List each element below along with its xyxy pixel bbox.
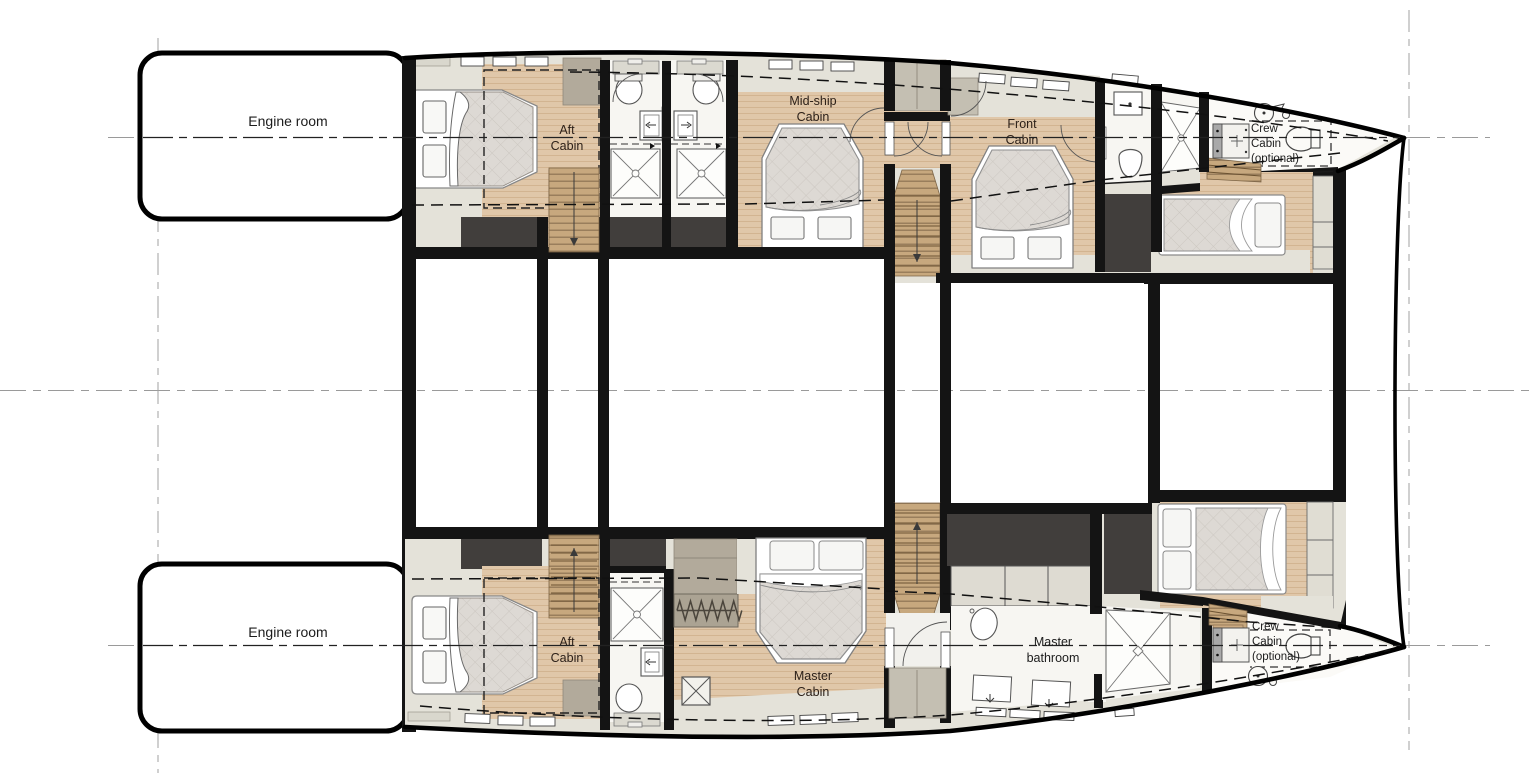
svg-text:Cabin: Cabin bbox=[551, 651, 584, 665]
svg-text:Cabin: Cabin bbox=[1251, 138, 1281, 150]
svg-text:(optional): (optional) bbox=[1252, 651, 1300, 663]
svg-text:Cabin: Cabin bbox=[797, 685, 830, 699]
svg-text:Cabin: Cabin bbox=[1252, 636, 1282, 648]
svg-text:Aft: Aft bbox=[559, 635, 575, 649]
svg-text:Master: Master bbox=[1034, 635, 1072, 649]
svg-text:Master: Master bbox=[794, 669, 832, 683]
svg-text:Mid-ship: Mid-ship bbox=[789, 94, 836, 108]
svg-text:bathroom: bathroom bbox=[1027, 651, 1080, 665]
svg-text:Engine room: Engine room bbox=[248, 113, 327, 129]
svg-text:Crew: Crew bbox=[1251, 123, 1279, 135]
svg-text:Cabin: Cabin bbox=[797, 110, 830, 124]
svg-text:Cabin: Cabin bbox=[551, 139, 584, 153]
svg-text:Front: Front bbox=[1007, 117, 1037, 131]
svg-text:Cabin: Cabin bbox=[1006, 133, 1039, 147]
svg-text:Aft: Aft bbox=[559, 123, 575, 137]
svg-text:Engine room: Engine room bbox=[248, 624, 327, 640]
